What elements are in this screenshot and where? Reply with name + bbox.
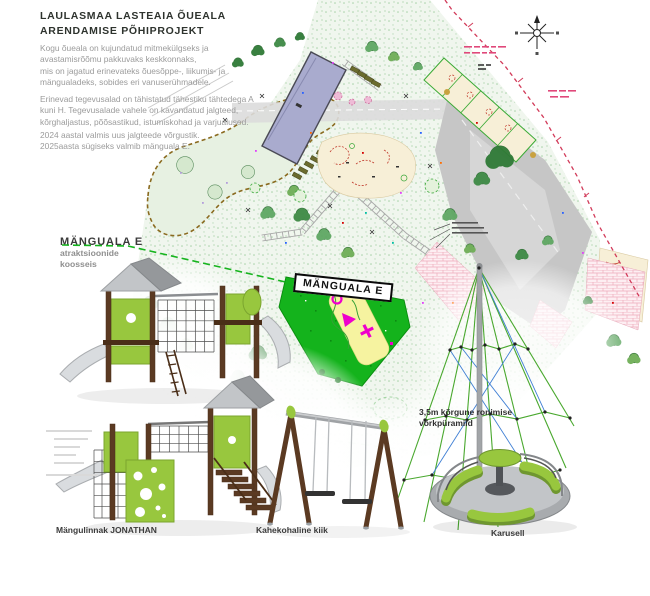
pyramid-note-line-2: võrkpüramiid — [419, 418, 512, 429]
area-callout-subtitle-2: koosseis — [60, 259, 143, 270]
intro-line: mängualadeks, sobides eri vanuserühmadel… — [40, 77, 225, 88]
pyramid-note: 3,5m kõrgune ronimise võrkpüramiid — [419, 407, 512, 429]
activity-zone — [318, 133, 416, 198]
intro-line: Kogu õueala on kujundatud mitmekülgseks … — [40, 43, 225, 54]
project-sheet: LAULASMAA LASTEAIA ÕUEALA ARENDAMISE PÕH… — [0, 0, 650, 596]
swing-label: Kahekohaline kiik — [256, 525, 328, 535]
playhouse-label: Mängulinnak JONATHAN — [56, 525, 157, 535]
intro-line: kõrghaljastus, põõsastikud, istumiskohad… — [40, 117, 254, 128]
intro-paragraph-1: Kogu õueala on kujundatud mitmekülgseks … — [40, 43, 225, 88]
area-callout-heading: MÄNGUALA E — [60, 236, 143, 248]
intro-paragraph-2: Erinevad tegevusalad on tähistatud tähes… — [40, 94, 254, 128]
page-title: LAULASMAA LASTEAIA ÕUEALA ARENDAMISE PÕH… — [40, 9, 226, 39]
intro-paragraph-3: 2024 aastal valmis uus jalgteede võrgust… — [40, 130, 200, 153]
site-plan-drawing — [0, 0, 650, 596]
intro-line: Erinevad tegevusalad on tähistatud tähes… — [40, 94, 254, 105]
area-callout-subtitle-1: atraktsioonide — [60, 248, 143, 259]
intro-line: 2025aasta sügiseks valmib mänguala E. — [40, 141, 200, 152]
intro-line: kuni H. Tegevusalade vahele on kavandatu… — [40, 105, 254, 116]
title-line-2: ARENDAMISE PÕHIPROJEKT — [40, 24, 226, 39]
carousel-label: Karusell — [491, 528, 525, 538]
area-callout: MÄNGUALA E atraktsioonide koosseis — [60, 236, 143, 269]
intro-line: 2024 aastal valmis uus jalgteede võrgust… — [40, 130, 200, 141]
intro-line: mis on jagatud erinevateks õuesõppe-, li… — [40, 66, 225, 77]
pyramid-note-line-1: 3,5m kõrgune ronimise — [419, 407, 512, 418]
intro-line: avastamisrõõmu pakkuvaks keskkonnaks, — [40, 54, 225, 65]
north-arrow-icon — [515, 15, 559, 55]
title-line-1: LAULASMAA LASTEAIA ÕUEALA — [40, 9, 226, 24]
